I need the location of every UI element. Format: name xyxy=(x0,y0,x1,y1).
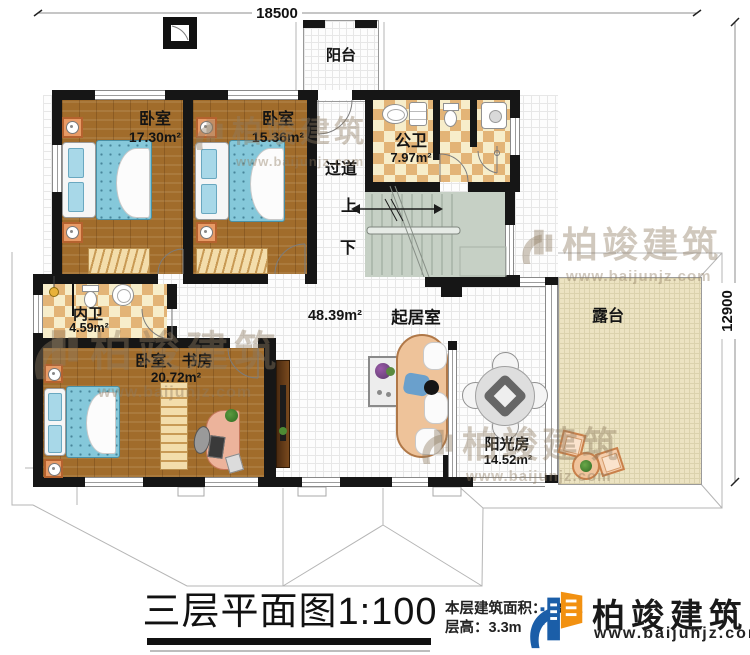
label-inner-bathroom: 内卫 xyxy=(68,307,108,322)
label-stairs-up: 上 xyxy=(340,199,358,215)
label-bedroom1: 卧室 xyxy=(125,112,185,128)
title-underline-thin xyxy=(150,650,430,652)
floor-plan-canvas: 18500 12900 阳台 卧室 17.30m² 卧室 15.36m² 公卫 … xyxy=(0,0,750,655)
label-living-area: 48.39m² xyxy=(306,309,364,324)
dimension-height: 12900 xyxy=(720,283,736,339)
label-terrace: 露台 xyxy=(586,309,630,325)
label-public-bathroom-area: 7.97m² xyxy=(383,151,439,164)
plan-title: 三层平面图1:100 xyxy=(140,592,440,634)
label-living-room: 起居室 xyxy=(388,310,444,327)
label-bedroom2: 卧室 xyxy=(248,112,308,128)
company-website: www.baijunjz.com xyxy=(594,625,750,643)
label-inner-bathroom-area: 4.59m² xyxy=(64,322,114,335)
label-sunroom: 阳光房 xyxy=(477,437,537,452)
label-balcony: 阳台 xyxy=(322,48,360,63)
floor-height-text: 层高：3.3m xyxy=(445,616,522,637)
label-hallway: 过道 xyxy=(318,162,364,178)
label-bedroom-study: 卧室、书房 xyxy=(128,354,220,370)
dimension-width: 18500 xyxy=(252,6,302,22)
label-bedroom2-area: 15.36m² xyxy=(240,130,316,144)
label-stairs-down: 下 xyxy=(339,241,357,257)
company-logo-icon xyxy=(524,584,592,652)
label-sunroom-area: 14.52m² xyxy=(477,453,539,466)
label-bedroom1-area: 17.30m² xyxy=(118,130,192,144)
title-underline xyxy=(147,638,431,645)
label-bedroom-study-area: 20.72m² xyxy=(145,371,207,385)
label-public-bathroom: 公卫 xyxy=(385,134,437,150)
